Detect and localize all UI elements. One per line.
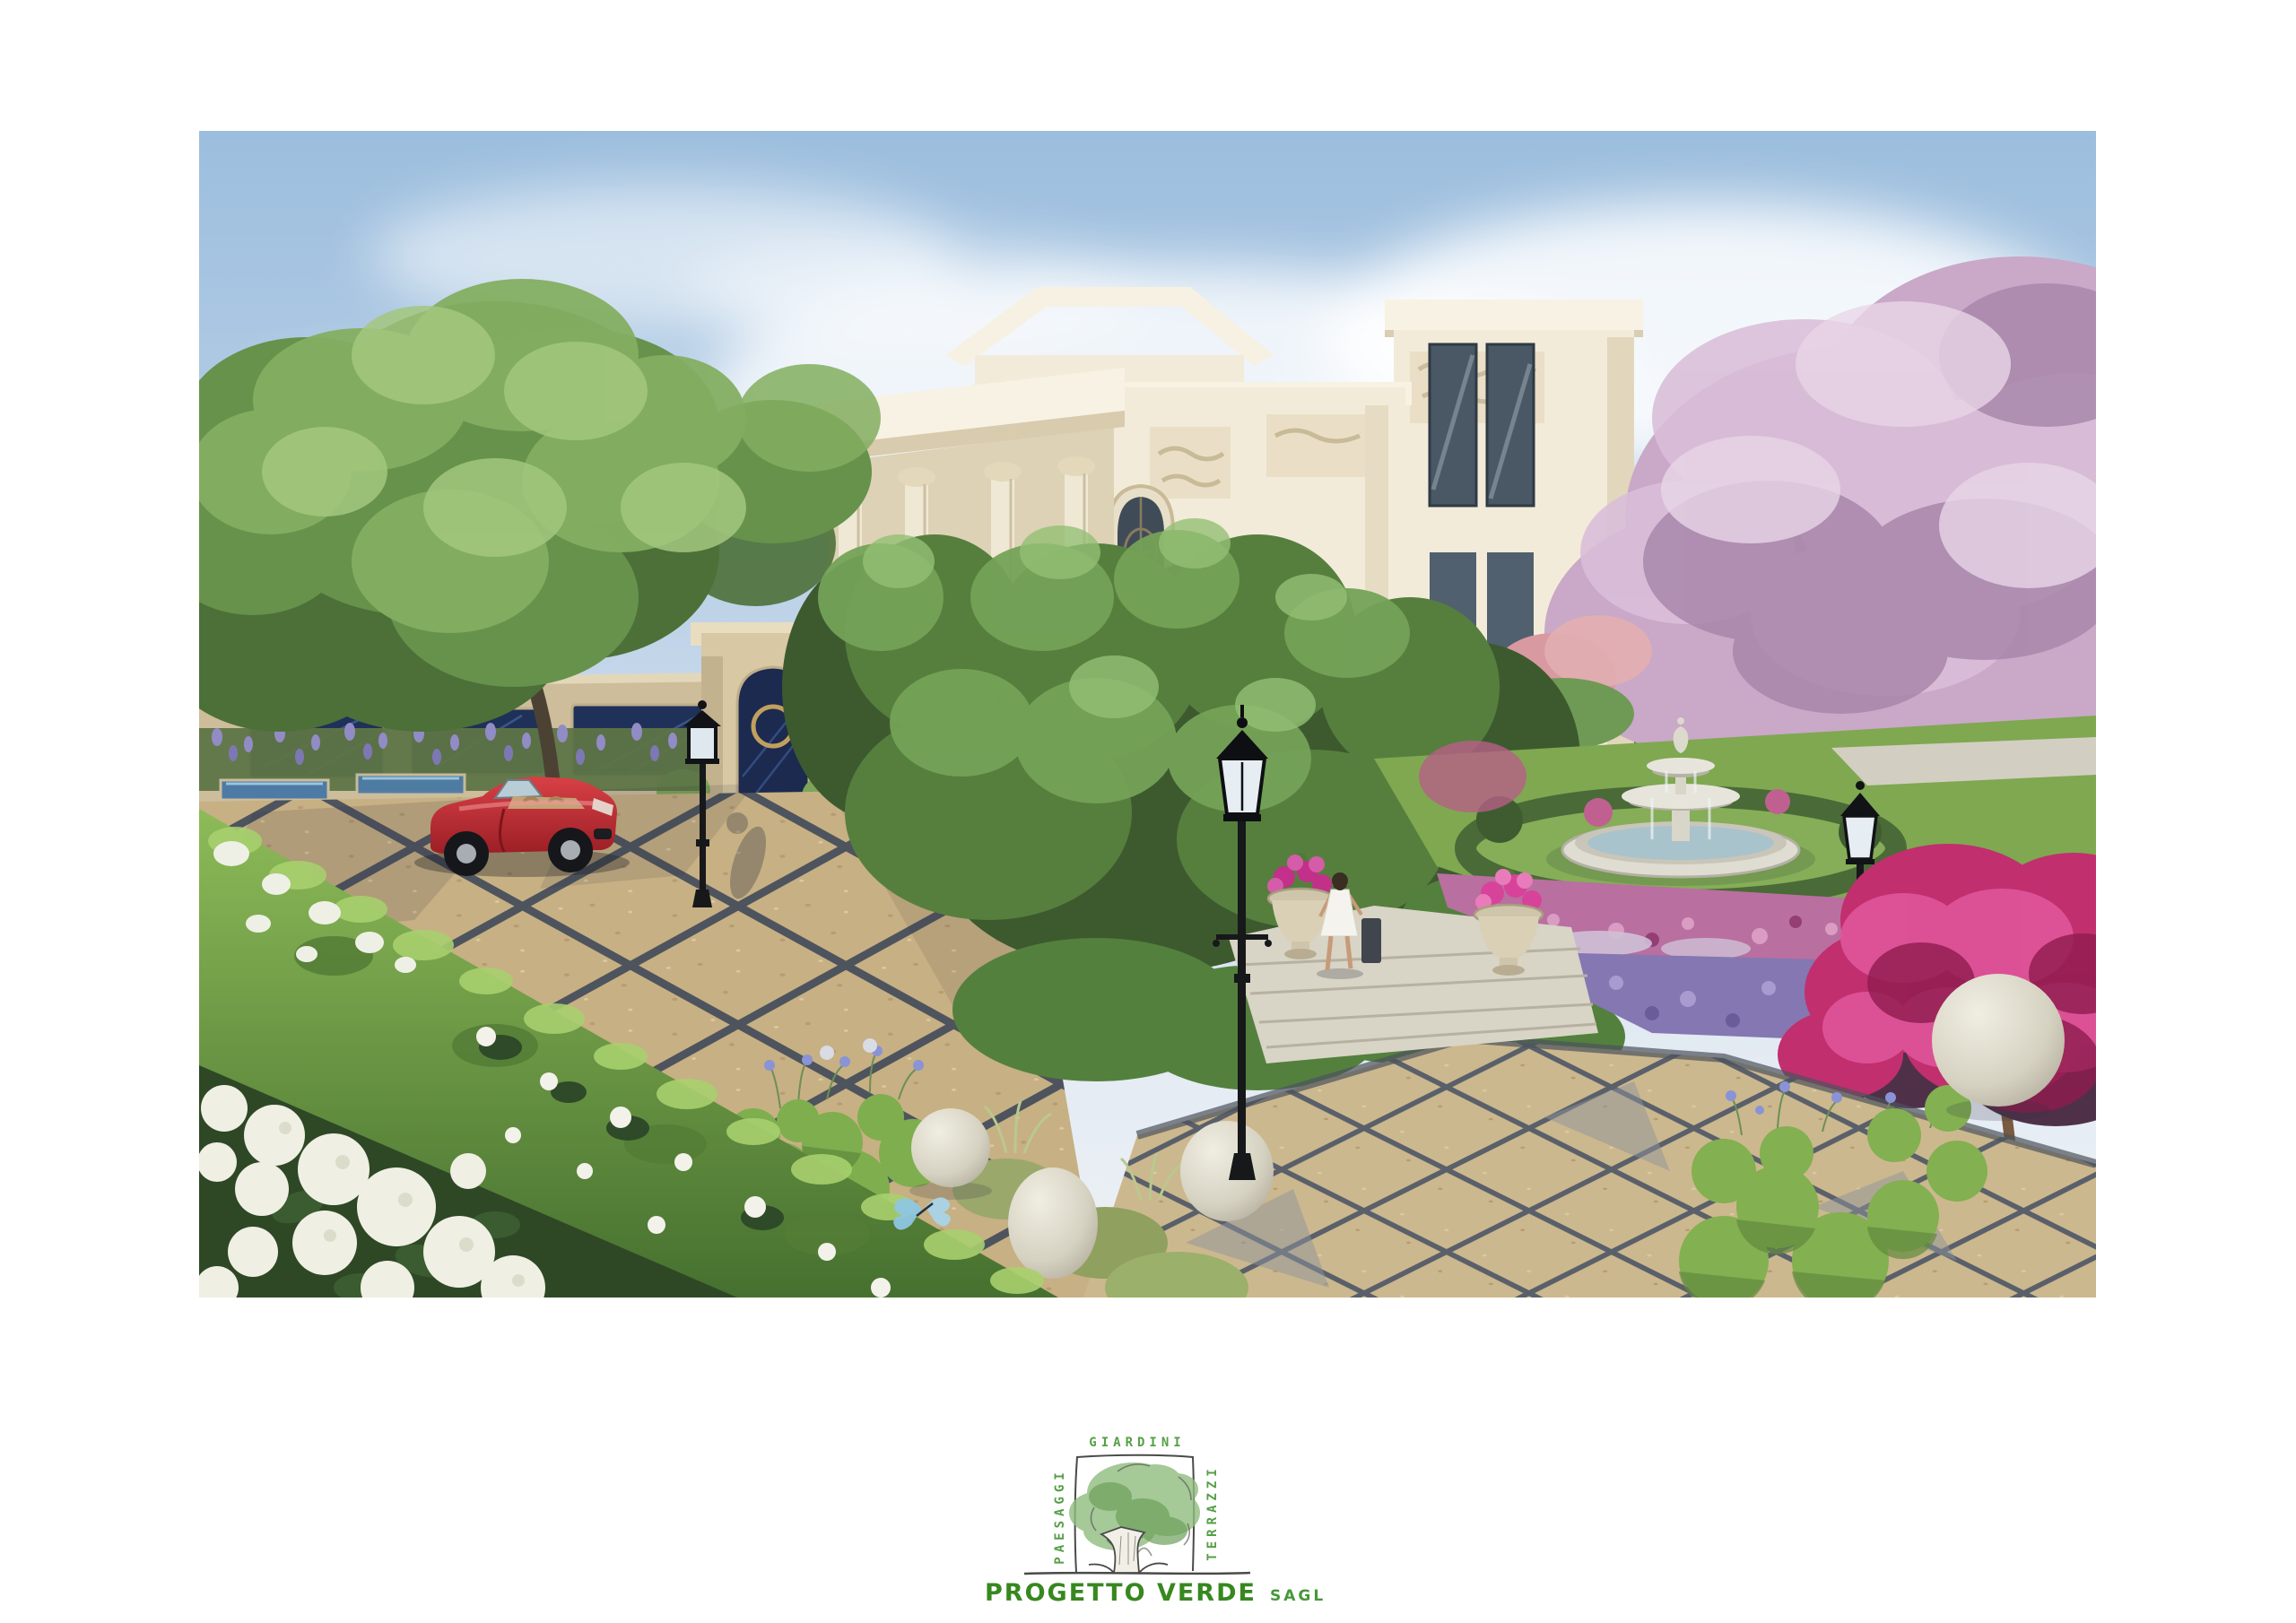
- logo-company-line: PROGETTO VERDE SAGL: [985, 1579, 1290, 1607]
- rendering-image: [199, 131, 2096, 1298]
- logo-label-giardini: GIARDINI: [985, 1436, 1290, 1450]
- logo-company-suffix: SAGL: [1270, 1587, 1326, 1605]
- logo-label-paesaggi: PAESAGGI: [1053, 1468, 1067, 1564]
- logo-label-terrazzi: TERRAZZI: [1205, 1464, 1220, 1560]
- presentation-board: GIARDINI PAESAGGI TERRAZZI PROGETTO VERD…: [0, 0, 2296, 1623]
- company-logo: GIARDINI PAESAGGI TERRAZZI PROGETTO VERD…: [985, 1430, 1290, 1623]
- logo-company-name: PROGETTO VERDE: [985, 1579, 1257, 1607]
